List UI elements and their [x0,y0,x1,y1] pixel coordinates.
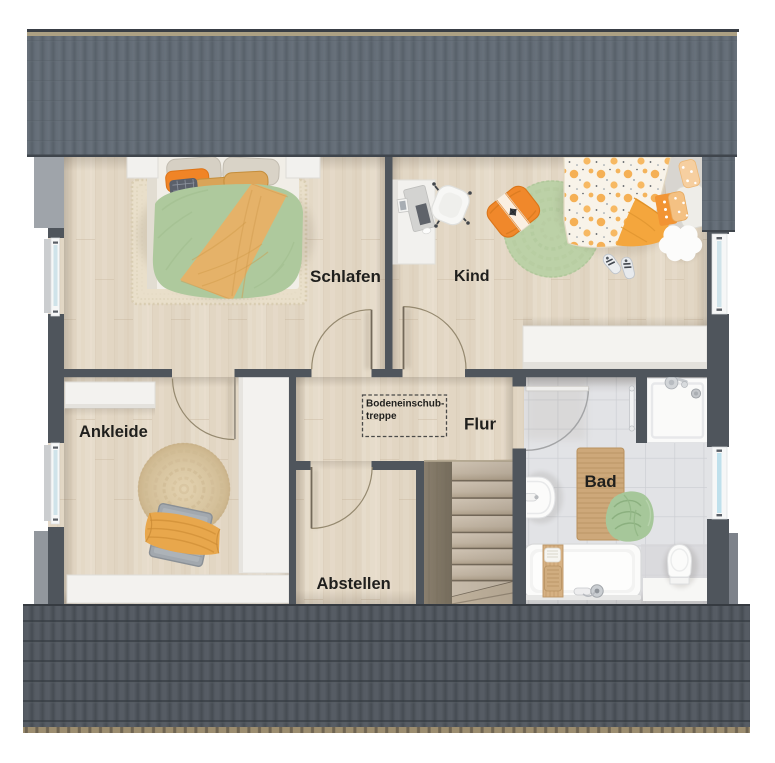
svg-text:Bodeneinschub-: Bodeneinschub- [366,399,444,410]
svg-text:treppe: treppe [366,411,397,422]
svg-text:Bad: Bad [585,472,617,491]
svg-text:Kind: Kind [454,268,490,285]
svg-text:Schlafen: Schlafen [310,267,381,286]
svg-text:Abstellen: Abstellen [317,575,391,593]
svg-text:Flur: Flur [464,415,496,434]
svg-text:Ankleide: Ankleide [79,423,148,441]
